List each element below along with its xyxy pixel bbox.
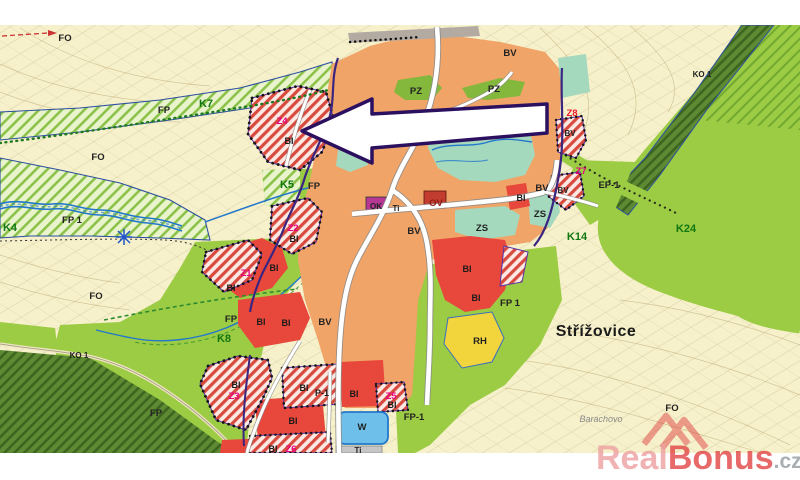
area-label-p1: P-1 <box>315 388 329 398</box>
city-name-label: Střížovice <box>556 323 637 340</box>
area-label-bi: BI <box>290 234 299 244</box>
area-label-fp: FP <box>225 314 238 325</box>
area-label-fp-1: FP-1 <box>404 412 425 423</box>
zone-label-k14: K14 <box>567 231 588 243</box>
area-label-bv: BV <box>318 317 332 328</box>
area-label-bi: BI <box>472 293 481 303</box>
area-label-zs: ZS <box>476 223 488 234</box>
area-label-bv: BV <box>535 183 549 194</box>
area-label-bv: BV <box>557 186 569 195</box>
zoning-map-page: FO FO FO FO FP FP FP FP FP 1 FP 1 FP-1 K… <box>0 0 800 480</box>
zone-label-z1: Z1 <box>240 268 252 279</box>
zone-label-k24: K24 <box>676 223 697 235</box>
area-label-bv: BV <box>407 226 421 237</box>
area-label-fp1: FP 1 <box>500 298 521 309</box>
zone-label-k8: K8 <box>217 333 231 345</box>
area-label-bi: BI <box>300 383 309 393</box>
area-label-pz: PZ <box>410 86 422 97</box>
area-label-rh: RH <box>473 336 487 347</box>
area-label-ov: OV <box>429 198 443 209</box>
top-margin <box>0 0 800 25</box>
locality-name-label: Barachovo <box>579 414 622 424</box>
area-label-bi: BI <box>227 283 236 293</box>
area-label-ti: Ti <box>393 204 400 213</box>
area-label-fo: FO <box>89 291 102 302</box>
area-label-bi: BI <box>269 444 278 454</box>
zone-label-k4: K4 <box>3 222 18 234</box>
area-label-bi: BI <box>285 136 294 146</box>
zone-label-k5: K5 <box>280 179 294 191</box>
zone-label-z5: Z5 <box>385 391 397 402</box>
area-label-bi: BI <box>289 416 298 426</box>
zoning-map: FO FO FO FO FP FP FP FP FP 1 FP 1 FP-1 K… <box>0 0 800 480</box>
road-label-ko1: KO 1 <box>693 70 712 79</box>
area-label-pz: PZ <box>488 84 500 95</box>
area-label-bv: BV <box>503 48 517 59</box>
area-label-fo: FO <box>58 33 71 44</box>
area-label-bi: BI <box>350 389 359 399</box>
area-label-zs: ZS <box>534 209 546 220</box>
area-label-ep1: EP-1 <box>598 180 620 191</box>
road-label-ko1: KO 1 <box>70 351 89 360</box>
area-label-bv: BV <box>564 129 576 138</box>
area-label-bi: BI <box>257 317 266 327</box>
area-label-bi: BI <box>282 318 291 328</box>
area-label-bi: BI <box>232 380 241 390</box>
zone-label-z3: Z3 <box>228 391 239 402</box>
area-label-fp: FP <box>158 105 171 116</box>
area-label-fo: FO <box>91 152 104 163</box>
zone-label-z8: Z8 <box>566 108 577 119</box>
pond-label-w: W <box>358 422 367 433</box>
zone-label-z2: Z2 <box>287 223 298 234</box>
area-label-bi: BI <box>517 193 526 203</box>
watermark-text: RealBonus.cz <box>596 439 800 477</box>
area-label-fp: FP <box>308 181 321 192</box>
area-label-bi: BI <box>463 264 472 274</box>
zone-label-z4: Z4 <box>276 116 288 127</box>
blue-star-symbol <box>116 229 132 245</box>
area-label-fp: FP <box>150 408 163 419</box>
area-label-ok: OK <box>370 202 382 211</box>
area-label-fo: FO <box>665 403 678 414</box>
area-label-fp1: FP 1 <box>62 215 83 226</box>
zone-label-k7: K7 <box>199 98 213 110</box>
area-label-bi: BI <box>270 263 279 273</box>
zone-label-z7: Z7 <box>575 166 586 177</box>
